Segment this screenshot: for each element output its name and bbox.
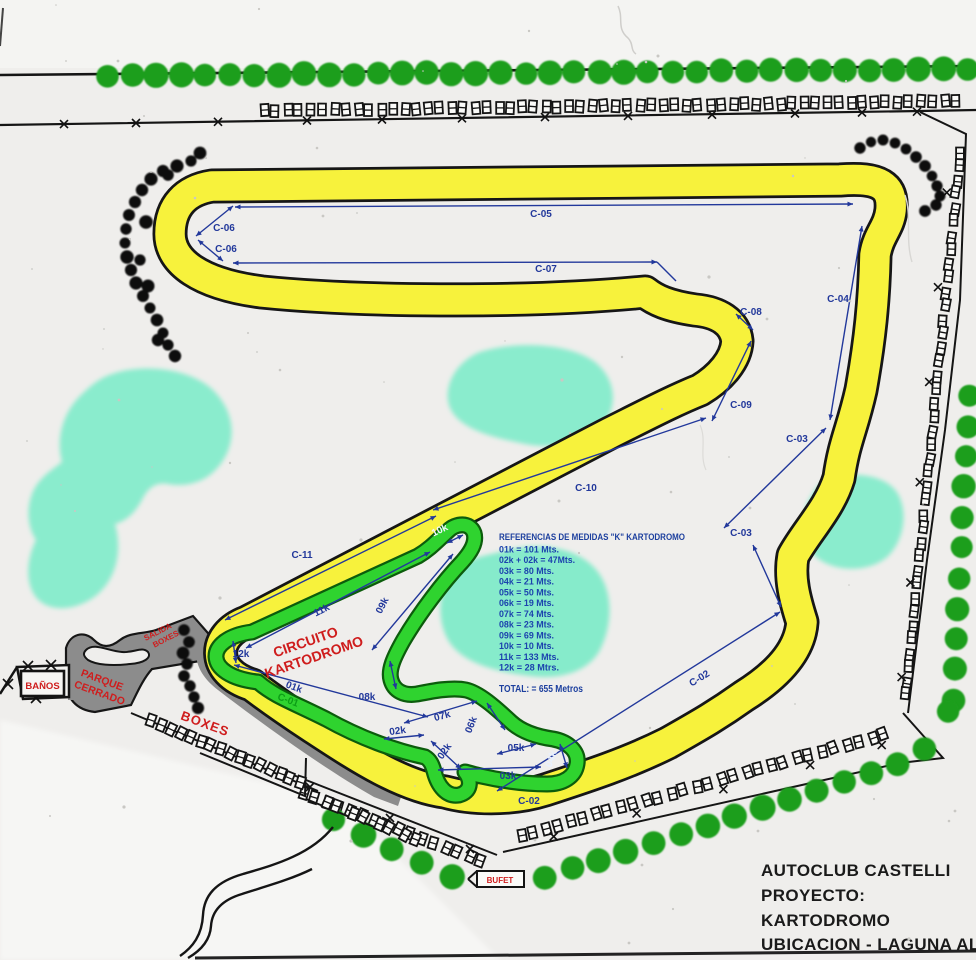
svg-text:C-05: C-05: [530, 209, 552, 220]
svg-text:UBICACION - LAGUNA AL: UBICACION - LAGUNA AL: [761, 935, 976, 954]
svg-text:C-08: C-08: [740, 307, 762, 318]
svg-text:C-10: C-10: [575, 483, 597, 494]
svg-text:KARTODROMO: KARTODROMO: [761, 911, 890, 930]
svg-text:C-04: C-04: [827, 294, 849, 305]
svg-text:BUFET: BUFET: [487, 876, 514, 885]
svg-text:11k = 133 Mts.: 11k = 133 Mts.: [499, 652, 559, 662]
svg-text:09k = 69 Mts.: 09k = 69 Mts.: [499, 630, 554, 640]
svg-text:C-02: C-02: [518, 796, 540, 807]
svg-text:C-07: C-07: [535, 264, 557, 275]
svg-text:AUTOCLUB CASTELLI: AUTOCLUB CASTELLI: [761, 861, 951, 880]
svg-text:03k = 80 Mts.: 03k = 80 Mts.: [499, 566, 554, 576]
svg-text:C-06: C-06: [213, 223, 235, 234]
svg-text:BAÑOS: BAÑOS: [25, 681, 59, 692]
svg-text:C-03: C-03: [786, 434, 808, 445]
svg-text:07k = 74 Mts.: 07k = 74 Mts.: [499, 609, 554, 619]
svg-text:C-03: C-03: [730, 528, 752, 539]
svg-text:04k = 21 Mts.: 04k = 21 Mts.: [499, 577, 554, 587]
svg-text:03k: 03k: [500, 771, 517, 782]
svg-text:08k: 08k: [359, 692, 376, 703]
svg-text:05k: 05k: [508, 743, 525, 754]
svg-text:08k = 23 Mts.: 08k = 23 Mts.: [499, 620, 554, 630]
svg-text:06k = 19 Mts.: 06k = 19 Mts.: [499, 598, 554, 608]
svg-text:10k = 10 Mts.: 10k = 10 Mts.: [499, 641, 554, 651]
svg-text:05k = 50 Mts.: 05k = 50 Mts.: [499, 587, 554, 597]
svg-text:C-09: C-09: [730, 400, 752, 411]
svg-text:PROYECTO:: PROYECTO:: [761, 886, 865, 905]
svg-text:12k: 12k: [233, 649, 250, 660]
svg-text:02k + 02k = 47Mts.: 02k + 02k = 47Mts.: [499, 555, 575, 565]
svg-text:C-11: C-11: [291, 550, 313, 561]
svg-text:REFERENCIAS DE MEDIDAS "K" KAR: REFERENCIAS DE MEDIDAS "K" KARTODROMO: [499, 532, 685, 543]
svg-text:12k = 28 Mtrs.: 12k = 28 Mtrs.: [499, 663, 559, 673]
svg-text:01k = 101 Mts.: 01k = 101 Mts.: [499, 544, 559, 554]
svg-text:TOTAL: = 655 Metros: TOTAL: = 655 Metros: [499, 684, 583, 695]
svg-text:C-06: C-06: [215, 244, 237, 255]
